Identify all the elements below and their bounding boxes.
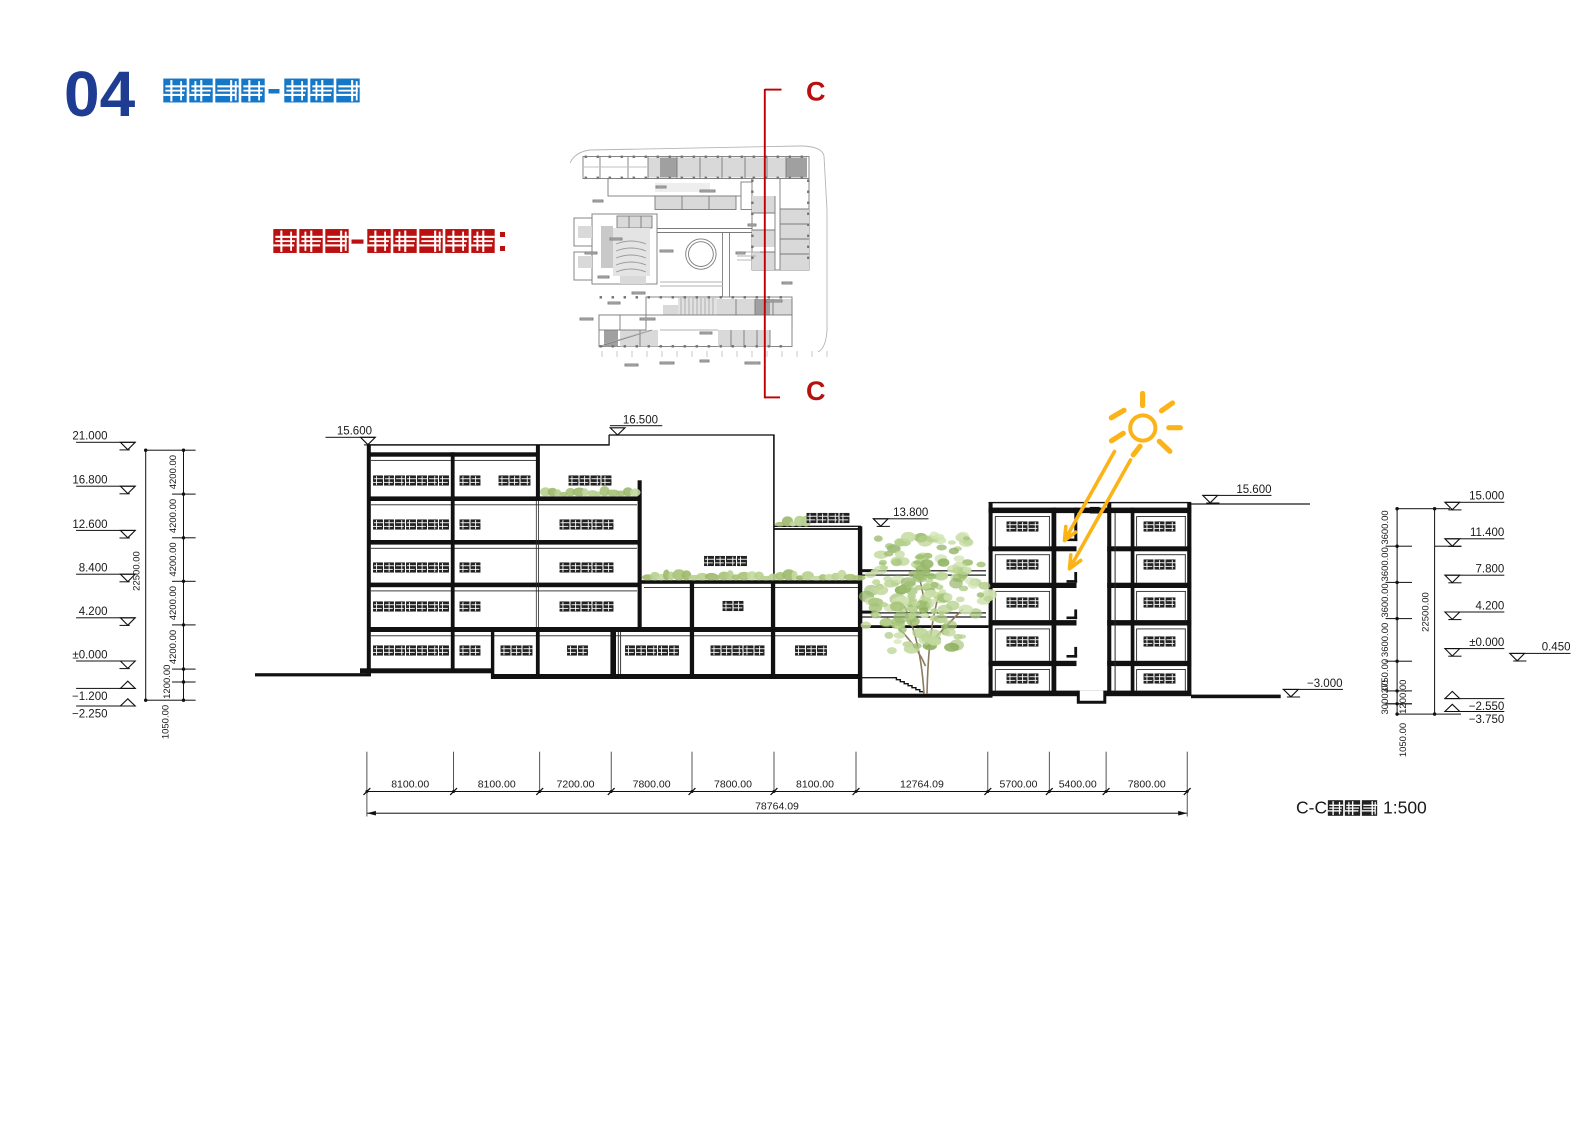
svg-text:1:500: 1:500 [1383, 798, 1427, 818]
svg-text:4.200: 4.200 [1476, 600, 1505, 612]
svg-text:7800.00: 7800.00 [714, 779, 752, 791]
svg-text:±0.000: ±0.000 [72, 649, 107, 661]
svg-text:±0.000: ±0.000 [1469, 637, 1504, 649]
svg-text:−3.750: −3.750 [1469, 714, 1505, 726]
svg-text:15.600: 15.600 [337, 426, 372, 438]
svg-text:3600.00: 3600.00 [1380, 510, 1391, 544]
svg-text:16.500: 16.500 [623, 414, 658, 426]
svg-text:3600.00: 3600.00 [1380, 623, 1391, 657]
svg-text:−1.200: −1.200 [72, 691, 108, 703]
svg-text:−2.250: −2.250 [72, 709, 108, 721]
svg-text:8100.00: 8100.00 [478, 779, 516, 791]
svg-text:16.800: 16.800 [72, 475, 107, 487]
svg-text:7800.00: 7800.00 [633, 779, 671, 791]
svg-text:C-C: C-C [1296, 798, 1327, 818]
svg-text:22500.00: 22500.00 [1421, 592, 1432, 632]
svg-text:−3.000: −3.000 [1307, 678, 1343, 690]
svg-text:1050.00: 1050.00 [161, 705, 172, 739]
svg-text:7800.00: 7800.00 [1128, 779, 1166, 791]
svg-text:4200.00: 4200.00 [168, 586, 179, 620]
svg-text:3600.00: 3600.00 [1380, 583, 1391, 617]
svg-text:12764.09: 12764.09 [900, 779, 944, 791]
svg-text:22500.00: 22500.00 [132, 551, 143, 591]
svg-text:04: 04 [64, 58, 136, 130]
svg-text:11.400: 11.400 [1470, 527, 1504, 539]
svg-text:4200.00: 4200.00 [168, 630, 179, 664]
svg-text:4200.00: 4200.00 [168, 455, 179, 489]
svg-text:13.800: 13.800 [893, 507, 928, 519]
svg-text:C: C [806, 77, 826, 107]
svg-text:5400.00: 5400.00 [1059, 779, 1097, 791]
svg-text:8.400: 8.400 [79, 563, 108, 575]
svg-text:4200.00: 4200.00 [168, 542, 179, 576]
svg-text:21.000: 21.000 [72, 431, 107, 443]
svg-text:15.600: 15.600 [1236, 484, 1271, 496]
svg-text:78764.09: 78764.09 [755, 801, 799, 813]
svg-text:12.600: 12.600 [72, 519, 107, 531]
svg-text:0.450: 0.450 [1542, 641, 1571, 653]
svg-text:8100.00: 8100.00 [391, 779, 429, 791]
svg-text:1200.00: 1200.00 [1398, 680, 1409, 714]
svg-text:15.000: 15.000 [1469, 491, 1504, 503]
svg-text:3000.00: 3000.00 [1380, 680, 1391, 714]
svg-text:7200.00: 7200.00 [557, 779, 595, 791]
svg-text:5700.00: 5700.00 [1000, 779, 1038, 791]
svg-text:1050.00: 1050.00 [1398, 723, 1409, 757]
svg-text:1200.00: 1200.00 [162, 665, 173, 699]
svg-text:8100.00: 8100.00 [796, 779, 834, 791]
svg-text:4.200: 4.200 [79, 606, 108, 618]
svg-text:3600.00: 3600.00 [1380, 547, 1391, 581]
svg-text:C: C [806, 376, 826, 406]
svg-text:7.800: 7.800 [1476, 564, 1505, 576]
svg-text:4200.00: 4200.00 [168, 499, 179, 533]
